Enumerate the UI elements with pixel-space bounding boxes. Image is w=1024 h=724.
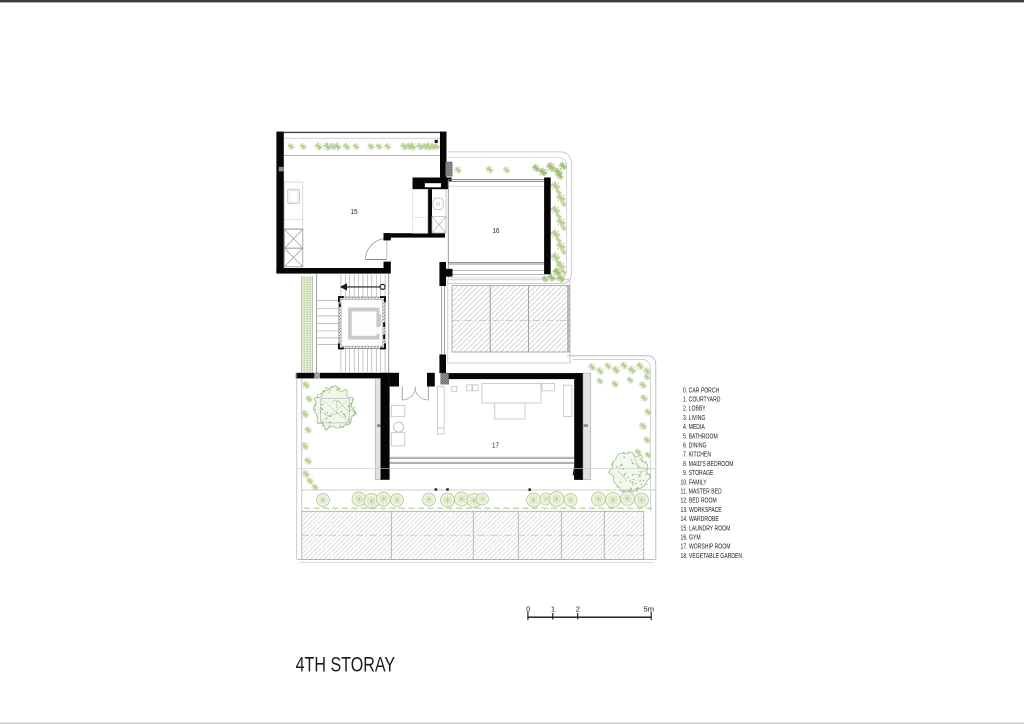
- svg-text:4TH STORAY: 4TH STORAY: [296, 652, 396, 677]
- svg-text:1. COURTYARD: 1. COURTYARD: [683, 397, 721, 404]
- svg-text:15: 15: [351, 209, 358, 216]
- svg-text:17. WORSHIP ROOM: 17. WORSHIP ROOM: [681, 544, 731, 551]
- svg-text:5. BATHROOM: 5. BATHROOM: [683, 434, 718, 441]
- svg-text:18. VEGETABLE GARDEN: 18. VEGETABLE GARDEN: [681, 553, 743, 560]
- svg-text:2: 2: [576, 604, 580, 613]
- svg-text:1: 1: [551, 604, 555, 613]
- svg-text:0. CAR PORCH: 0. CAR PORCH: [683, 388, 719, 395]
- svg-text:8. MAID'S BEDROOM: 8. MAID'S BEDROOM: [683, 461, 733, 468]
- svg-text:11. MASTER BED: 11. MASTER BED: [681, 489, 723, 496]
- svg-text:4. MEDIA: 4. MEDIA: [683, 425, 706, 432]
- svg-text:15. LAUNDRY ROOM: 15. LAUNDRY ROOM: [681, 526, 731, 533]
- svg-text:10. FAMILY: 10. FAMILY: [681, 480, 707, 487]
- svg-text:6. DINING: 6. DINING: [683, 443, 707, 450]
- svg-text:2. LOBBY: 2. LOBBY: [683, 406, 706, 413]
- svg-text:9. STORAGE: 9. STORAGE: [683, 471, 713, 478]
- svg-text:16. GYM: 16. GYM: [681, 535, 701, 542]
- svg-text:3. LIVING: 3. LIVING: [683, 415, 706, 422]
- svg-text:5m: 5m: [644, 604, 655, 613]
- svg-text:12. BED ROOM: 12. BED ROOM: [681, 498, 717, 505]
- svg-text:7. KITCHEN: 7. KITCHEN: [683, 452, 711, 459]
- svg-text:16: 16: [493, 228, 500, 235]
- svg-text:0: 0: [526, 604, 530, 613]
- svg-text:14. WARDROBE: 14. WARDROBE: [681, 517, 719, 524]
- svg-text:13. WORKSPACE: 13. WORKSPACE: [681, 507, 722, 514]
- svg-text:17: 17: [492, 443, 499, 450]
